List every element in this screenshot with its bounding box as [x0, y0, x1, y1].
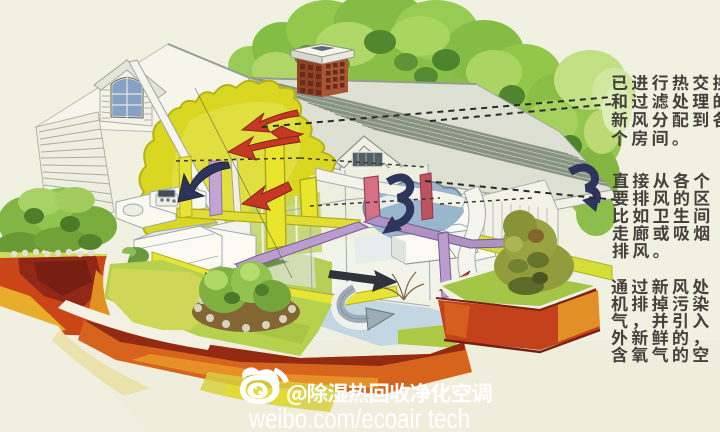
- svg-text:weibo.com/ecoair tech: weibo.com/ecoair tech: [248, 403, 470, 432]
